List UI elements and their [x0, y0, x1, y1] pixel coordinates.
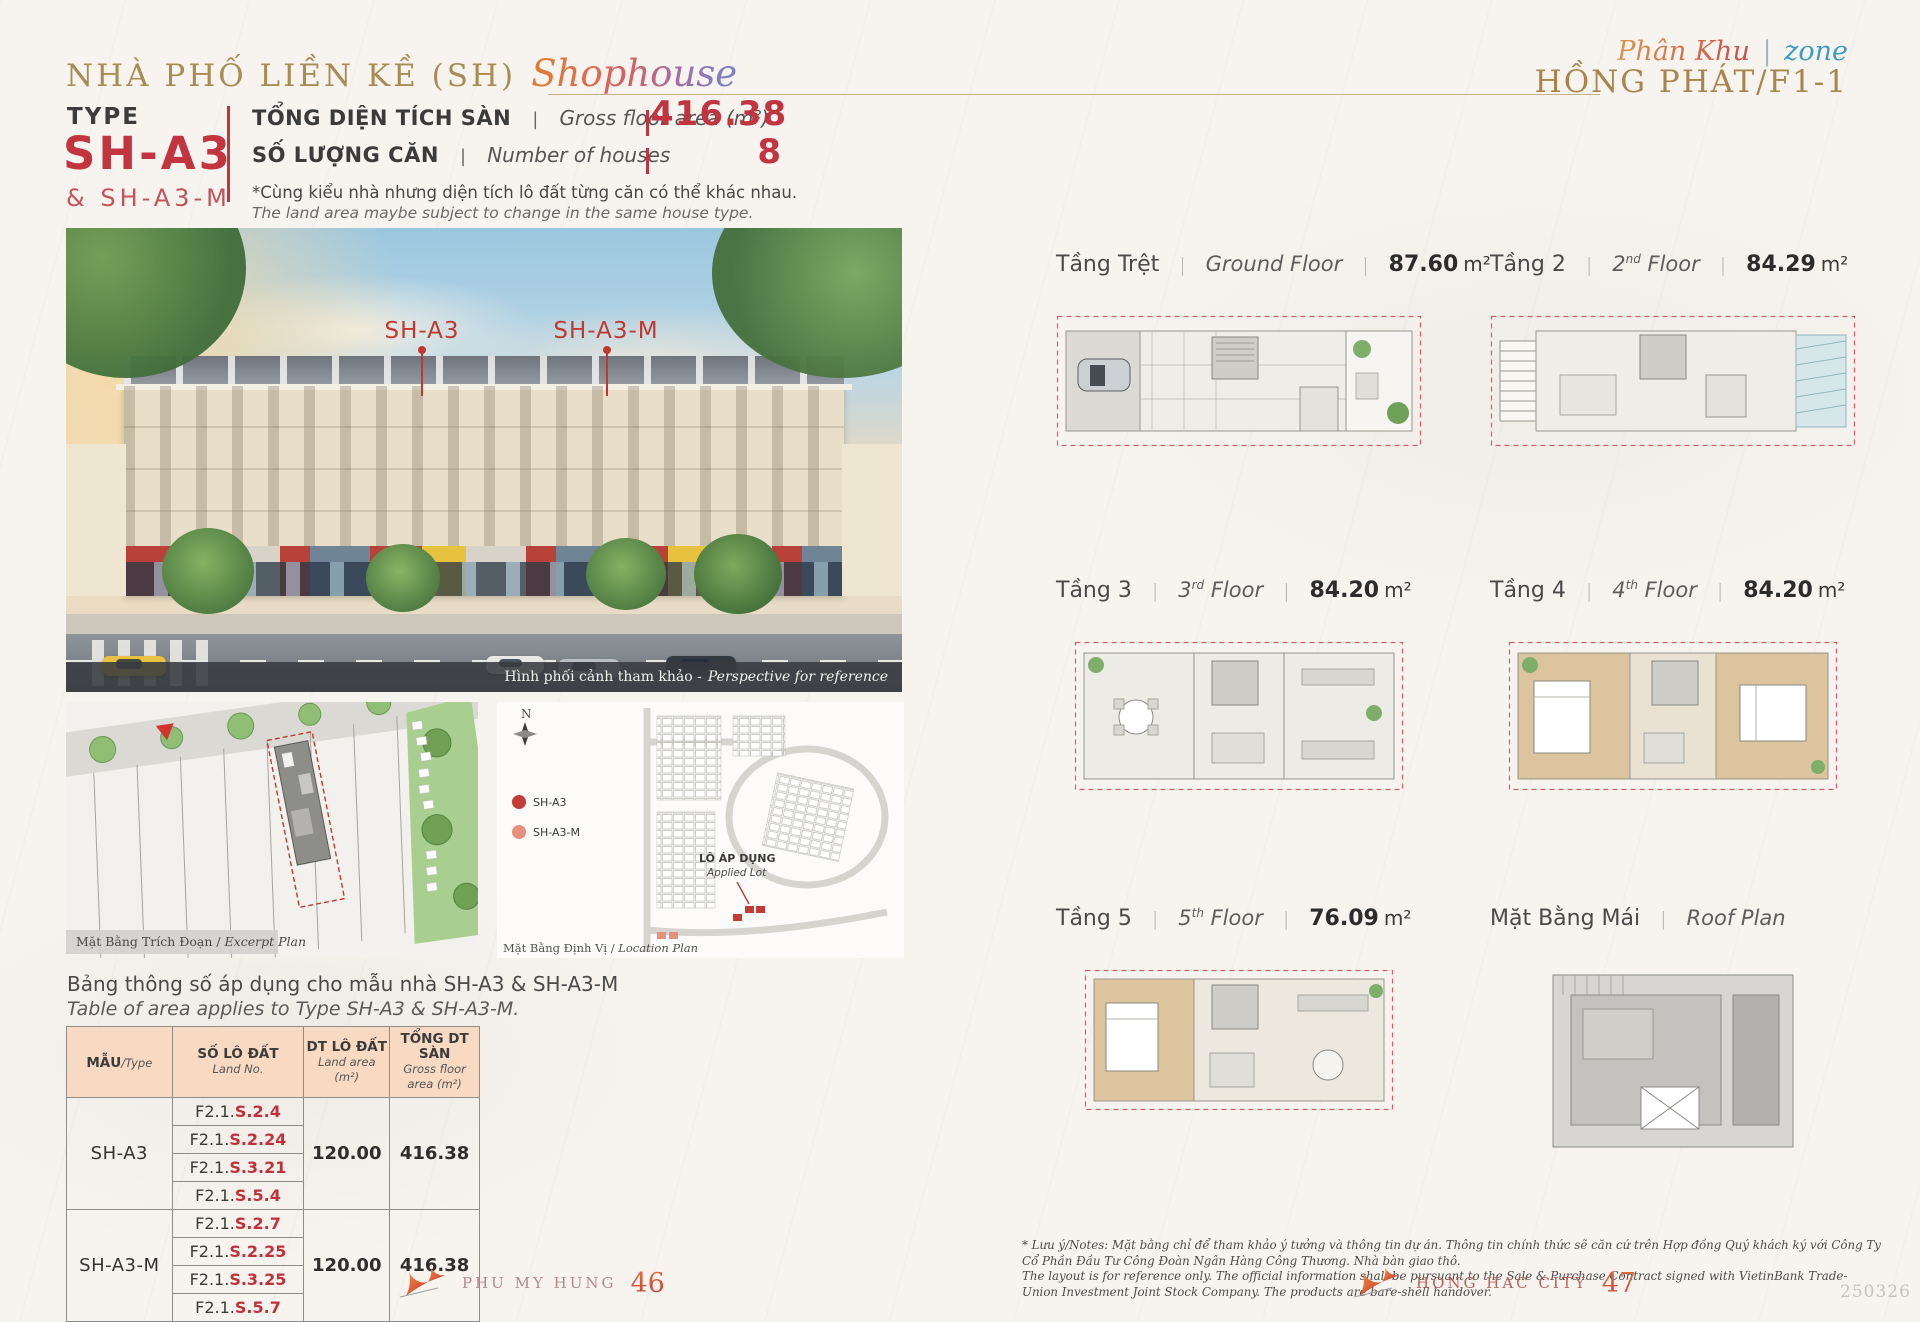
floor-card-2: Tầng 2 | 2nd Floor | 84.29 m²: [1456, 252, 1890, 447]
street-tree: [366, 544, 440, 612]
lot-cell: F2.1.S.5.4: [172, 1182, 304, 1210]
floor-card-5: Tầng 5 | 5th Floor | 76.09 m²: [1022, 906, 1456, 1111]
perspective-caption-en: Perspective for reference: [708, 669, 888, 685]
floor-sep: |: [1152, 908, 1158, 930]
bird-logo-icon: [398, 1266, 454, 1300]
floor-label: Tầng 3 | 3rd Floor | 84.20 m²: [1022, 578, 1456, 603]
building-wing-right: [842, 444, 902, 596]
floor-card-4: Tầng 4 | 4th Floor | 84.20 m²: [1456, 578, 1890, 791]
stat2-divider: [646, 148, 649, 174]
floor-label: Tầng 2 | 2nd Floor | 84.29 m²: [1456, 252, 1890, 277]
footer-brand-left-name: PHU MY HUNG: [462, 1274, 616, 1292]
floor-area: 84.29: [1746, 252, 1816, 277]
floor-area-unit: m²: [1384, 906, 1412, 930]
area-table-title-en: Table of area applies to Type SH-A3 & SH…: [67, 997, 618, 1022]
header-landarea-en: Land area (m²): [306, 1055, 387, 1085]
floor-plan-graphic: [1084, 969, 1394, 1111]
header-landno-en: Land No.: [175, 1062, 302, 1077]
sidewalk: [66, 614, 902, 634]
floor-plan-graphic: [1074, 641, 1404, 791]
legend-label-sh-a3-m: SH-A3-M: [533, 826, 580, 839]
header-type-en: Type: [125, 1056, 152, 1070]
footer-brand-left: PHU MY HUNG 46: [398, 1266, 665, 1300]
gross-area-cell: 416.38: [390, 1098, 480, 1210]
floor-card-3: Tầng 3 | 3rd Floor | 84.20 m²: [1022, 578, 1456, 791]
lot-code: S.3.25: [229, 1270, 286, 1289]
floor-plan-graphic: [1056, 315, 1422, 447]
zone-name: HỒNG PHÁT/F1-1: [1535, 64, 1848, 100]
floor-name-vi: Tầng 2: [1490, 252, 1566, 277]
lot-code: S.5.4: [235, 1186, 281, 1205]
floor-area: 76.09: [1309, 906, 1379, 931]
floor-label: Tầng 5 | 5th Floor | 76.09 m²: [1022, 906, 1456, 931]
stat1-vi: TỔNG DIỆN TÍCH SÀN: [252, 106, 511, 130]
header-gross-en: Gross floor area (m²): [392, 1062, 477, 1092]
col-header-land-area: DT LÔ ĐẤT Land area (m²): [304, 1027, 390, 1098]
lot-code: S.2.25: [229, 1242, 286, 1261]
building-wing-left: [66, 444, 126, 596]
page-title-vi: NHÀ PHỐ LIỀN KỀ (SH): [66, 58, 516, 94]
applied-lot-en: Applied Lot: [706, 867, 767, 879]
lot-code: S.5.7: [235, 1298, 281, 1317]
location-plan-caption-en: Location Plan: [617, 941, 698, 955]
floor-name-en: 3rd Floor: [1178, 578, 1263, 602]
unit-leader-sh-a3: [421, 350, 423, 396]
lot-cell: F2.1.S.2.7: [172, 1210, 304, 1238]
street-tree: [162, 528, 254, 614]
floor-label: Tầng 4 | 4th Floor | 84.20 m²: [1456, 578, 1890, 603]
page-title-script: Shophouse: [531, 52, 737, 95]
type-note-vi: *Cùng kiểu nhà nhưng diện tích lô đất từ…: [252, 182, 797, 203]
floor-name-en: Ground Floor: [1206, 252, 1343, 276]
floor-sep: |: [1660, 908, 1666, 930]
svg-text:Mặt Bằng Trích Đoạn / Excerpt: Mặt Bằng Trích Đoạn / Excerpt Plan: [76, 934, 306, 949]
type-cell-sh-a3: SH-A3: [67, 1098, 173, 1210]
zone-script-label: Phân Khu | zone: [1617, 36, 1848, 67]
stat2-en: Number of houses: [487, 143, 670, 167]
footer-page-left: 46: [630, 1268, 664, 1299]
floor-area: 87.60: [1389, 252, 1459, 277]
land-area-cell: 120.00: [304, 1098, 390, 1210]
col-header-land-no: SỐ LÔ ĐẤT Land No.: [172, 1027, 304, 1098]
page-title: NHÀ PHỐ LIỀN KỀ (SH) Shophouse: [66, 52, 737, 95]
lot-prefix: F2.1.: [190, 1158, 230, 1177]
lot-prefix: F2.1.: [190, 1130, 230, 1149]
type-code-alt: & SH-A3-M: [66, 184, 231, 212]
lot-cell: F2.1.S.2.4: [172, 1098, 304, 1126]
floor-label: Mặt Bằng Mái | Roof Plan: [1456, 906, 1890, 931]
header-type-vi: MẪU: [86, 1055, 121, 1071]
floor-sep: |: [1586, 254, 1592, 276]
type-code: SH-A3: [63, 127, 233, 180]
floor-sep: |: [1720, 254, 1726, 276]
lot-prefix: F2.1.: [195, 1102, 235, 1121]
header-landno-vi: SỐ LÔ ĐẤT: [175, 1047, 302, 1062]
zone-script-en: zone: [1784, 36, 1848, 67]
type-divider-line: [227, 106, 230, 202]
perspective-caption-vi: Hình phối cảnh tham khảo -: [504, 669, 701, 685]
col-header-type: MẪU/Type: [67, 1027, 173, 1098]
excerpt-plan: Mặt Bằng Trích Đoạn / Excerpt Plan: [66, 702, 478, 958]
floor-name-vi: Tầng 3: [1056, 578, 1132, 603]
location-plan: N SH-A3 SH-A3-M: [497, 702, 904, 958]
col-header-gross-area: TỔNG DT SÀN Gross floor area (m²): [390, 1027, 480, 1098]
lot-cell: F2.1.S.3.25: [172, 1266, 304, 1294]
floor-name-en: 4th Floor: [1612, 578, 1697, 602]
applied-lot-vi: LÔ ÁP DỤNG: [699, 852, 776, 865]
footer-page-right: 47: [1602, 1268, 1636, 1299]
zone-script-sep: |: [1762, 36, 1771, 67]
lot-prefix: F2.1.: [195, 1214, 235, 1233]
type-cell-sh-a3-m: SH-A3-M: [67, 1210, 173, 1322]
lot-cell: F2.1.S.2.24: [172, 1126, 304, 1154]
floor-card-ground: Tầng Trệt | Ground Floor | 87.60 m²: [1022, 252, 1456, 447]
perspective-caption: Hình phối cảnh tham khảo - Perspective f…: [66, 662, 902, 692]
floor-card-roof: Mặt Bằng Mái | Roof Plan: [1456, 906, 1890, 1155]
floor-label: Tầng Trệt | Ground Floor | 87.60 m²: [1022, 252, 1456, 277]
floor-name-vi: Mặt Bằng Mái: [1490, 906, 1640, 931]
floor-sep: |: [1362, 254, 1368, 276]
lot-prefix: F2.1.: [195, 1186, 235, 1205]
floor-area-unit: m²: [1818, 578, 1846, 602]
floor-name-en: Roof Plan: [1687, 906, 1786, 930]
bird-logo-icon: [1352, 1266, 1408, 1300]
type-note-en: The land area maybe subject to change in…: [252, 203, 797, 224]
perspective-rendering: SH-A3 SH-A3-M Hình phối cảnh tham khảo -…: [66, 228, 902, 692]
excerpt-plan-caption-en: Excerpt Plan: [224, 934, 306, 949]
floor-name-vi: Tầng 4: [1490, 578, 1566, 603]
lot-prefix: F2.1.: [195, 1298, 235, 1317]
unit-leader-sh-a3-m: [606, 350, 608, 396]
floor-sep: |: [1586, 580, 1592, 602]
stat2-sep: |: [460, 146, 466, 167]
stat-number-of-houses: SỐ LƯỢNG CĂN | Number of houses: [252, 143, 670, 167]
table-row: SH-A3 F2.1.S.2.4 120.00 416.38: [67, 1098, 480, 1126]
footer-brand-right: HONG HAC CITY 47: [1352, 1266, 1636, 1300]
header-gross-vi: TỔNG DT SÀN: [392, 1032, 477, 1062]
type-note: *Cùng kiểu nhà nhưng diện tích lô đất từ…: [252, 182, 797, 224]
floor-area-unit: m²: [1384, 578, 1412, 602]
zone-script-vi: Phân Khu: [1617, 36, 1750, 67]
floor-area-unit: m²: [1821, 252, 1849, 276]
floor-name-en: 2nd Floor: [1612, 252, 1700, 276]
lot-code: S.2.4: [235, 1102, 281, 1121]
brochure-page: NHÀ PHỐ LIỀN KỀ (SH) Shophouse Phân Khu …: [0, 0, 1920, 1320]
location-plan-caption-vi: Mặt Bằng Định Vị /: [503, 941, 618, 955]
floor-plan-graphic: [1490, 315, 1856, 447]
floor-sep: |: [1179, 254, 1185, 276]
floor-area: 84.20: [1743, 578, 1813, 603]
table-row: SH-A3-M F2.1.S.2.7 120.00 416.38: [67, 1210, 480, 1238]
floor-sep: |: [1152, 580, 1158, 602]
street-tree: [586, 538, 666, 610]
floor-name-vi: Tầng 5: [1056, 906, 1132, 931]
lot-prefix: F2.1.: [190, 1270, 230, 1289]
area-table-title: Bảng thông số áp dụng cho mẫu nhà SH-A3 …: [67, 972, 618, 1022]
lot-code: S.2.24: [229, 1130, 286, 1149]
floor-sep: |: [1283, 908, 1289, 930]
unit-label-sh-a3-m: SH-A3-M: [536, 318, 676, 344]
legend-label-sh-a3: SH-A3: [533, 796, 567, 809]
lot-code: S.2.7: [235, 1214, 281, 1233]
doc-code: 250326: [1840, 1282, 1911, 1302]
stat1-sep: |: [532, 109, 538, 130]
header-landarea-vi: DT LÔ ĐẤT: [306, 1040, 387, 1055]
lot-prefix: F2.1.: [190, 1242, 230, 1261]
floor-name-vi: Tầng Trệt: [1056, 252, 1159, 277]
stat2-vi: SỐ LƯỢNG CĂN: [252, 143, 439, 167]
floor-name-en: 5th Floor: [1178, 906, 1263, 930]
lot-code: S.3.21: [229, 1158, 286, 1177]
stat1-divider: [646, 110, 649, 136]
stat1-value: 416.38: [650, 94, 782, 134]
compass-n: N: [521, 707, 532, 721]
floor-plan-graphic: [1523, 969, 1823, 1155]
footer-brand-right-name: HONG HAC CITY: [1416, 1274, 1588, 1292]
excerpt-plan-caption-vi: Mặt Bằng Trích Đoạn /: [76, 934, 225, 949]
lot-cell: F2.1.S.2.25: [172, 1238, 304, 1266]
area-table-title-vi: Bảng thông số áp dụng cho mẫu nhà SH-A3 …: [67, 972, 618, 997]
lot-cell: F2.1.S.3.21: [172, 1154, 304, 1182]
floor-sep: |: [1717, 580, 1723, 602]
floor-sep: |: [1283, 580, 1289, 602]
svg-text:Mặt Bằng Định Vị / Location Pl: Mặt Bằng Định Vị / Location Plan: [503, 941, 698, 955]
footer-disclaimer-vi: * Lưu ý/Notes: Mặt bằng chỉ để tham khảo…: [1022, 1238, 1882, 1269]
unit-label-sh-a3: SH-A3: [362, 318, 482, 344]
floor-area: 84.20: [1310, 578, 1380, 603]
land-area-cell: 120.00: [304, 1210, 390, 1322]
street-tree: [694, 534, 782, 614]
floor-plan-graphic: [1508, 641, 1838, 791]
lot-cell: F2.1.S.5.7: [172, 1294, 304, 1322]
stat2-value: 8: [650, 132, 782, 172]
